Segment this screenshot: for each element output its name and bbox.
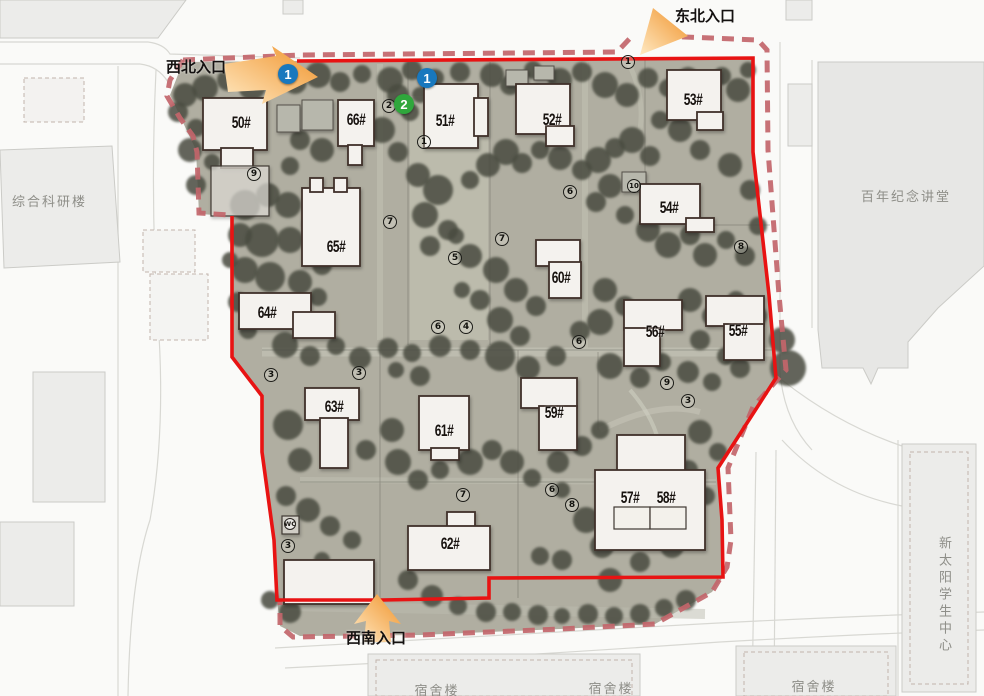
circled-marker-1: 1: [621, 55, 635, 69]
surrounding-label-3: 宿舍楼: [414, 680, 459, 696]
building-label-66: 66#: [347, 109, 366, 129]
building-label-59: 59#: [545, 402, 564, 422]
circled-marker-7: 7: [456, 488, 470, 502]
circled-marker-7: 7: [495, 232, 509, 246]
circled-marker-1: 1: [417, 135, 431, 149]
building-label-58: 58#: [657, 487, 676, 507]
surrounding-label-4: 宿舍楼: [588, 678, 633, 696]
building-label-57: 57#: [621, 487, 640, 507]
building-label-64: 64#: [258, 302, 277, 322]
surrounding-label-1: 百年纪念讲堂: [861, 186, 951, 205]
building-label-52: 52#: [543, 109, 562, 129]
route-marker-green-2: 2: [394, 94, 414, 114]
circled-marker-8: 8: [565, 498, 579, 512]
wc-label: WC: [284, 518, 296, 530]
building-label-65: 65#: [327, 236, 346, 256]
circled-marker-6: 6: [545, 483, 559, 497]
building-label-60: 60#: [552, 267, 571, 287]
surrounding-label-0: 综合科研楼: [12, 191, 87, 210]
route-marker-blue-1: 1: [278, 64, 298, 84]
circled-marker-6: 6: [563, 185, 577, 199]
building-label-53: 53#: [684, 89, 703, 109]
circled-marker-3: 3: [281, 539, 295, 553]
circled-marker-6: 6: [431, 320, 445, 334]
circled-marker-6: 6: [572, 335, 586, 349]
surrounding-label-2: 新太阳学生中心: [934, 536, 953, 655]
building-label-51: 51#: [436, 110, 455, 130]
circled-marker-9: 9: [660, 376, 674, 390]
building-label-56: 56#: [646, 321, 665, 341]
entrance-label-northeast: 东北入口: [675, 5, 735, 26]
circled-marker-10: 10: [627, 179, 641, 193]
circled-marker-7: 7: [383, 215, 397, 229]
entrance-label-southwest: 西南入口: [346, 627, 406, 648]
entrance-label-northwest: 西北入口: [166, 56, 226, 77]
labels-overlay: 50#66#51#52#53#54#65#60#64#56#55#63#61#5…: [0, 0, 984, 696]
building-label-63: 63#: [325, 396, 344, 416]
building-label-50: 50#: [232, 112, 251, 132]
circled-marker-4: 4: [459, 320, 473, 334]
circled-marker-3: 3: [264, 368, 278, 382]
building-label-54: 54#: [660, 197, 679, 217]
circled-marker-3: 3: [352, 366, 366, 380]
building-label-55: 55#: [729, 320, 748, 340]
circled-marker-8: 8: [734, 240, 748, 254]
circled-marker-5: 5: [448, 251, 462, 265]
campus-site-plan: 50#66#51#52#53#54#65#60#64#56#55#63#61#5…: [0, 0, 984, 696]
building-label-62: 62#: [441, 533, 460, 553]
surrounding-label-5: 宿舍楼: [791, 676, 836, 695]
building-label-61: 61#: [435, 420, 454, 440]
route-marker-blue-1: 1: [417, 68, 437, 88]
circled-marker-9: 9: [247, 167, 261, 181]
circled-marker-3: 3: [681, 394, 695, 408]
